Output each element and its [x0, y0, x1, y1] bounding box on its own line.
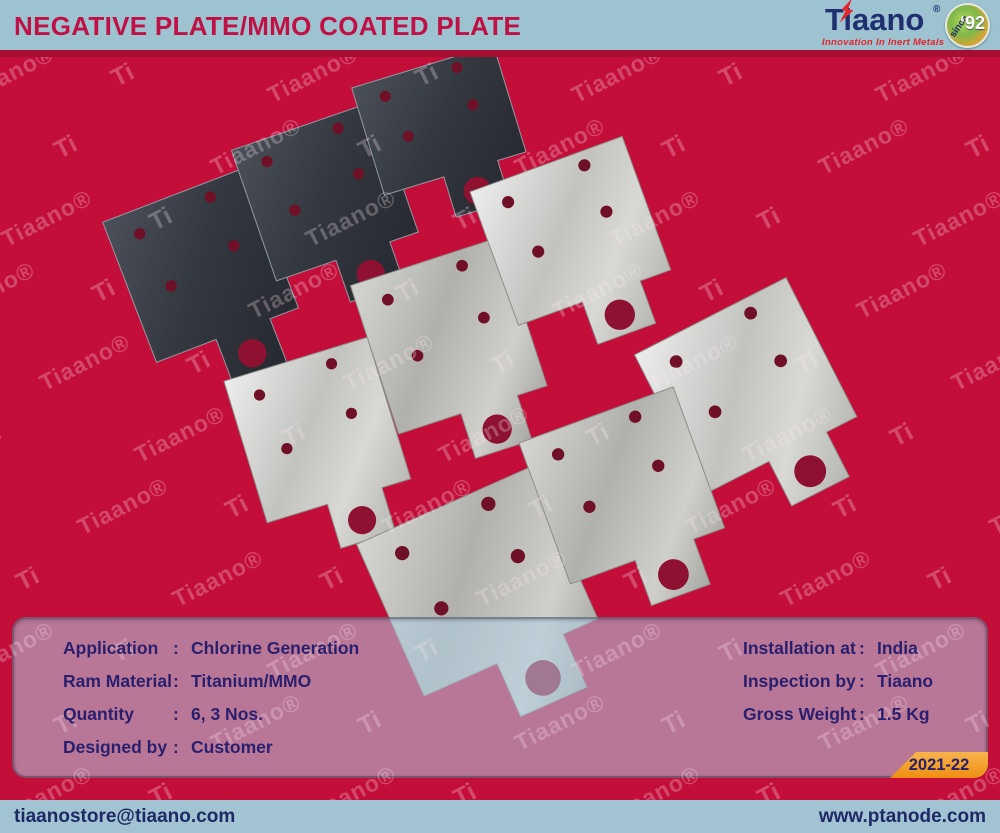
- spec-right-column: Installation at : India Inspection by : …: [743, 632, 933, 731]
- mmo-coated-plate-3: [352, 45, 539, 236]
- plate-hole: [742, 305, 759, 322]
- tiaano-watermark: Tiaano®: [909, 184, 1000, 252]
- plate-hole: [380, 292, 395, 307]
- tiaano-watermark: Tiaano®: [263, 57, 362, 109]
- mmo-coated-plate-2: [231, 102, 432, 323]
- titanium-plate-6: [519, 387, 741, 629]
- spec-label: Gross Weight: [743, 704, 859, 725]
- ti-watermark: Ti: [316, 562, 349, 598]
- titanium-plate-3: [470, 136, 686, 367]
- plate-hole: [530, 244, 546, 260]
- plate-tab-hole: [479, 411, 516, 448]
- spec-colon: :: [859, 671, 873, 692]
- tiaano-watermark: Tiaano®: [605, 184, 704, 252]
- plate-hole: [668, 353, 685, 370]
- titanium-plate-1: [224, 337, 424, 566]
- tiaano-watermark: Tiaano®: [985, 472, 1000, 540]
- plate-hole: [410, 348, 425, 363]
- spec-panel-content: Application : Chlorine Generation Ram Ma…: [12, 617, 988, 778]
- since-1992-badge: since ‘92: [945, 3, 990, 48]
- tiaano-watermark: Tiaano®: [73, 472, 172, 540]
- spec-value: 6, 3 Nos.: [191, 704, 263, 725]
- spec-value: Customer: [191, 737, 273, 758]
- plate-tab-hole: [460, 173, 495, 208]
- tiaano-watermark: Tiaano®: [852, 256, 951, 324]
- plate-hole: [203, 190, 218, 205]
- plate-hole: [288, 203, 302, 217]
- spec-colon: :: [173, 704, 187, 725]
- spec-colon: :: [859, 704, 873, 725]
- tiaano-watermark: Tiaano®: [0, 256, 39, 324]
- titanium-plate-5: [635, 278, 880, 539]
- ti-watermark: Ti: [88, 274, 121, 310]
- spec-row-installation-at: Installation at : India: [743, 632, 933, 665]
- tiaano-watermark: Tiaano®: [377, 472, 476, 540]
- tiaano-watermark: Tiaano®: [206, 112, 305, 180]
- plate-hole: [260, 154, 274, 168]
- footer-email: tiaanostore@tiaano.com: [14, 800, 235, 833]
- ti-watermark: Ti: [753, 778, 786, 800]
- spec-colon: :: [173, 638, 187, 659]
- year-text: ‘92: [960, 13, 985, 34]
- ti-watermark: Ti: [658, 130, 691, 166]
- mmo-coated-plate-1: [103, 168, 316, 406]
- titanium-plate-2: [350, 237, 561, 478]
- tiaano-watermark: Tiaano®: [871, 57, 970, 109]
- tiaano-logo: Tiaano ® Innovation In Inert Metals sinc…: [777, 1, 992, 49]
- spec-row-raw-material: Ram Material : Titanium/MMO: [63, 665, 359, 698]
- tiaano-watermark: Tiaano®: [0, 688, 1, 756]
- ti-watermark: Ti: [183, 346, 216, 382]
- plate-hole: [550, 446, 566, 462]
- tiaano-watermark: Tiaano®: [434, 400, 533, 468]
- plate-hole: [450, 61, 464, 75]
- plate-hole: [599, 204, 615, 220]
- header-divider: [0, 50, 1000, 57]
- tiaano-watermark: Tiaano®: [0, 112, 1, 180]
- plate-tab-hole: [789, 450, 832, 493]
- plate-hole: [477, 310, 492, 325]
- ti-watermark: Ti: [145, 778, 178, 800]
- ti-watermark: Ti: [0, 418, 6, 454]
- ti-watermark: Ti: [753, 202, 786, 238]
- spec-value: India: [877, 638, 918, 659]
- plate-hole: [432, 599, 451, 618]
- spec-colon: :: [173, 737, 187, 758]
- plate-hole: [479, 494, 498, 513]
- tiaano-watermark: Tiaano®: [472, 544, 571, 612]
- plate-hole: [508, 547, 527, 566]
- plate-tab-hole: [234, 335, 271, 372]
- registered-trademark: ®: [933, 4, 940, 15]
- plate-tab-hole: [654, 555, 693, 594]
- ti-watermark: Ti: [487, 346, 520, 382]
- plate-hole: [627, 409, 643, 425]
- tiaano-watermark: Tiaano®: [681, 472, 780, 540]
- datasheet-page: TiTiaano®TiTiaano®TiTiaano®TiTiaano®TiTi…: [0, 0, 1000, 833]
- tiaano-watermark: Tiaano®: [0, 184, 96, 252]
- spec-value: Tiaano: [877, 671, 933, 692]
- tiaano-watermark: Tiaano®: [947, 328, 1000, 396]
- plate-tab-hole: [600, 295, 639, 334]
- plate-hole: [706, 403, 723, 420]
- spec-left-column: Application : Chlorine Generation Ram Ma…: [63, 632, 359, 764]
- plate-hole: [582, 499, 598, 515]
- ti-watermark: Ti: [696, 274, 729, 310]
- ti-watermark: Ti: [107, 58, 140, 94]
- plate-hole: [393, 544, 412, 563]
- ti-watermark: Ti: [582, 418, 615, 454]
- spec-label: Quantity: [63, 704, 173, 725]
- plate-hole: [164, 279, 179, 294]
- plate-hole: [227, 238, 242, 253]
- ti-watermark: Ti: [715, 58, 748, 94]
- plate-hole: [253, 388, 267, 402]
- tiaano-watermark: Tiaano®: [548, 256, 647, 324]
- spec-label: Ram Material: [63, 671, 173, 692]
- spec-row-designed-by: Designed by : Customer: [63, 731, 359, 764]
- year-badge: 2021-22: [890, 752, 988, 778]
- spec-row-gross-weight: Gross Weight : 1.5 Kg: [743, 698, 933, 731]
- ti-watermark: Ti: [50, 130, 83, 166]
- spec-colon: :: [859, 638, 873, 659]
- plate-hole: [331, 121, 345, 135]
- page-title: NEGATIVE PLATE/MMO COATED PLATE: [14, 0, 521, 53]
- footer-website: www.ptanode.com: [819, 800, 986, 833]
- tiaano-watermark: Tiaano®: [35, 328, 134, 396]
- tiaano-watermark: Tiaano®: [776, 544, 875, 612]
- tiaano-watermark: Tiaano®: [168, 544, 267, 612]
- plate-hole: [325, 357, 339, 371]
- plate-hole: [466, 98, 480, 112]
- plate-hole: [500, 194, 516, 210]
- ti-watermark: Ti: [354, 130, 387, 166]
- tiaano-watermark: Tiaano®: [301, 184, 400, 252]
- tiaano-watermark: Tiaano®: [510, 112, 609, 180]
- plate-hole: [401, 129, 415, 143]
- plate-hole: [280, 442, 294, 456]
- ti-watermark: Ti: [145, 202, 178, 238]
- ti-watermark: Ti: [525, 490, 558, 526]
- plate-hole: [351, 167, 365, 181]
- spec-label: Application: [63, 638, 173, 659]
- ti-watermark: Ti: [449, 202, 482, 238]
- plate-tab-hole: [345, 503, 380, 538]
- plate-hole: [344, 406, 358, 420]
- spec-label: Installation at: [743, 638, 859, 659]
- ti-watermark: Ti: [221, 490, 254, 526]
- spec-row-inspection-by: Inspection by : Tiaano: [743, 665, 933, 698]
- ti-watermark: Ti: [620, 562, 653, 598]
- tiaano-watermark: Tiaano®: [130, 400, 229, 468]
- spec-label: Designed by: [63, 737, 173, 758]
- spec-value: Titanium/MMO: [191, 671, 311, 692]
- logo-tagline: Innovation In Inert Metals: [822, 37, 944, 48]
- spec-value: 1.5 Kg: [877, 704, 930, 725]
- spec-value: Chlorine Generation: [191, 638, 359, 659]
- tiaano-watermark: Tiaano®: [567, 57, 666, 109]
- plate-hole: [577, 158, 593, 174]
- ti-watermark: Ti: [411, 58, 444, 94]
- plate-hole: [650, 458, 666, 474]
- spec-colon: :: [173, 671, 187, 692]
- footer-bar: tiaanostore@tiaano.com www.ptanode.com: [0, 800, 1000, 833]
- ti-watermark: Ti: [791, 346, 824, 382]
- spec-row-application: Application : Chlorine Generation: [63, 632, 359, 665]
- spec-row-quantity: Quantity : 6, 3 Nos.: [63, 698, 359, 731]
- ti-watermark: Ti: [886, 418, 919, 454]
- tiaano-watermark: Tiaano®: [643, 328, 742, 396]
- tiaano-watermark: Tiaano®: [0, 57, 58, 109]
- spec-label: Inspection by: [743, 671, 859, 692]
- ti-watermark: Ti: [449, 778, 482, 800]
- tiaano-watermark: Tiaano®: [244, 256, 343, 324]
- plate-hole: [132, 226, 147, 241]
- plate-hole: [378, 90, 392, 104]
- tiaano-watermark: Tiaano®: [339, 328, 438, 396]
- ti-watermark: Ti: [278, 418, 311, 454]
- ti-watermark: Ti: [12, 562, 45, 598]
- plate-tab-hole: [353, 256, 389, 292]
- ti-watermark: Ti: [962, 130, 995, 166]
- tiaano-watermark: Tiaano®: [738, 400, 837, 468]
- ti-watermark: Ti: [924, 562, 957, 598]
- tiaano-watermark: Tiaano®: [814, 112, 913, 180]
- ti-watermark: Ti: [829, 490, 862, 526]
- ti-watermark: Ti: [392, 274, 425, 310]
- plate-hole: [772, 352, 789, 369]
- plate-hole: [455, 258, 470, 273]
